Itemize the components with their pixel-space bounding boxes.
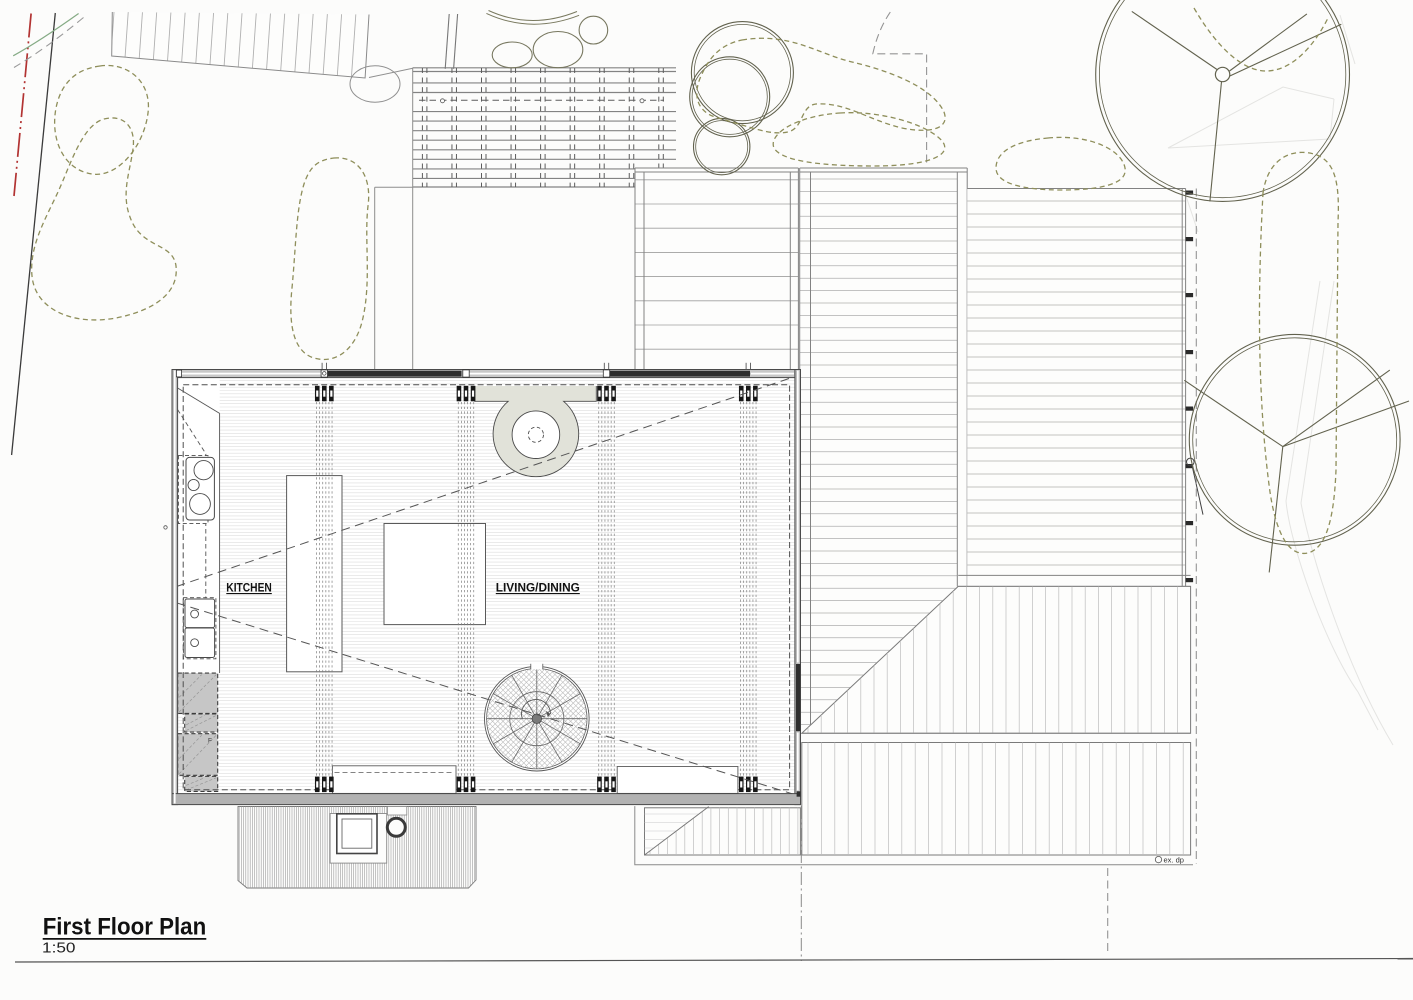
svg-text:F: F <box>208 738 212 745</box>
svg-text:ex. dp: ex. dp <box>1164 856 1184 865</box>
svg-text:KITCHEN: KITCHEN <box>226 580 271 594</box>
svg-text:First Floor Plan: First Floor Plan <box>43 914 207 941</box>
svg-text:1:50: 1:50 <box>42 941 76 957</box>
svg-text:LIVING/DINING: LIVING/DINING <box>496 580 580 594</box>
